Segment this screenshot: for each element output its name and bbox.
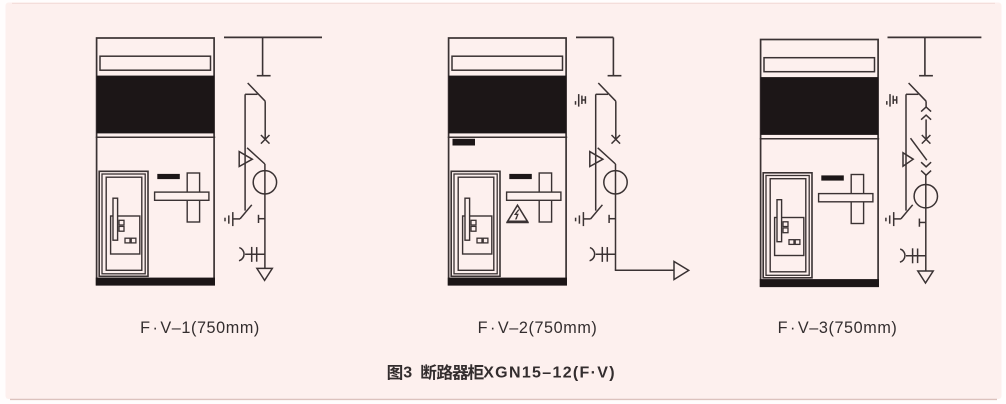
svg-text:XGN15–12(F·V): XGN15–12(F·V) — [483, 364, 616, 381]
svg-text:F·V–3(750mm): F·V–3(750mm) — [778, 319, 898, 337]
svg-text:F·V–1(750mm): F·V–1(750mm) — [140, 319, 260, 337]
svg-text:F·V–2(750mm): F·V–2(750mm) — [478, 319, 598, 337]
svg-text:3: 3 — [403, 364, 412, 381]
